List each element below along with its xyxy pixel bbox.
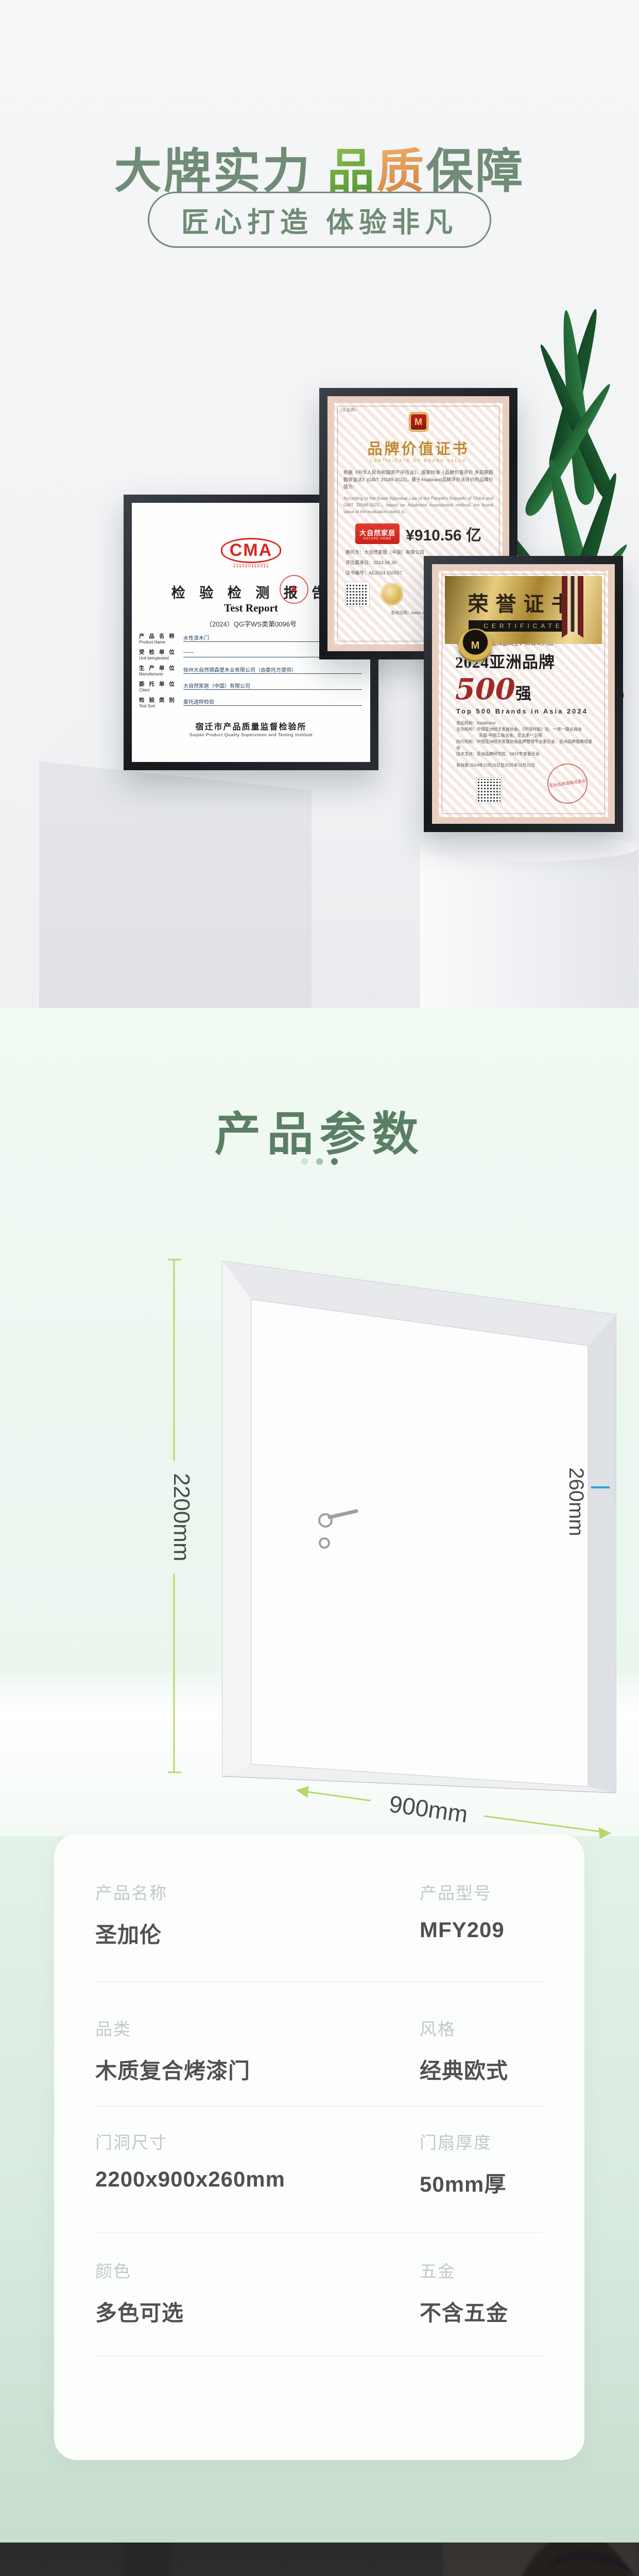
honor-org-line: 东盟-中国工商总会、亚太第一卫视 [456,733,593,739]
honor-org-line: 执行机构：中国亚洲经济发展协会品牌管理专业委员会、亚洲品牌盛典组委会 [456,739,593,751]
m-badge-icon: M [411,414,426,430]
spec-row: 品类 木质复合烤漆门 风格 经典欧式 [95,2015,543,2085]
door-depth-label: 260mm [565,1467,588,1536]
honor-validity: 有效期:2024年10月26日至2025年10月25日 [456,762,608,768]
spec-label: 门扇厚度 [420,2129,506,2154]
product-params-section: 产品参数 2200mm [0,1008,639,2543]
hero-section: 大牌实力 品质保障 匠心打造 体验非凡 CMA [0,0,639,1008]
brand-value-paragraph-cn: 依据《中华人民共和国资产评估法》、国家标准《品牌价值评价 多周期超额收益法》(G… [343,469,493,491]
door-leaf [251,1299,588,1787]
red-seal-icon: ✶ [280,575,308,604]
spec-value: 不含五金 [420,2296,508,2327]
honor-org-line: 技术支持：亚洲品牌研究院、5810专家委员会 [456,751,593,757]
door-frame-right [588,1315,616,1793]
cma-logo: CMA [221,538,281,563]
test-report-field: 生 产 单 位Manufacturer 徐州大自然德森堡木业有限公司（由委托方提… [139,664,370,676]
gold-seal-icon [381,583,403,605]
honor-award-en: Top 500 Brands in Asia 2024 [456,707,608,715]
divider [95,1981,543,1982]
spec-label: 产品型号 [420,1879,505,1904]
service-section: 金保姆服务 全国1000+实体门店支持 咨询下单 › 上门量尺 [0,2543,639,2576]
hero-title-accent-orange: 质 [376,145,426,198]
hero-subtitle: 匠心打造 体验非凡 [148,192,491,248]
honor-org-line: 主办机构：中国亚洲经济发展协会、《环球时报》社、一带一路总商会 [456,726,593,733]
certificate-honor: 荣誉证书 CERTIFICATE M 证书编号:BP2024-100047 大自… [424,556,623,832]
hero-title-prefix: 大牌实力 [114,145,327,198]
test-report-field: 委 托 单 位Client 大自然家居（中国）有限公司 [139,680,370,692]
spec-value: 经典欧式 [420,2054,508,2085]
product-detail-page: 大牌实力 品质保障 匠心打造 体验非凡 CMA [0,0,639,2576]
door-height-label: 2200mm [169,1473,194,1561]
brand-value-amount: ¥910.56 亿 [406,522,481,545]
spec-row: 门洞尺寸 2200x900x260mm 门扇厚度 50mm厚 [95,2129,543,2192]
nature-home-logo: 大自然家居 NATURE HOME [355,523,400,544]
params-title: 产品参数 [0,1096,639,1163]
brand-value-paragraph-en: According to the Asset Appraisal Law of … [343,495,493,516]
spec-label: 五金 [420,2258,508,2282]
door-width-label: 900mm [388,1790,470,1828]
divider [95,2355,543,2356]
divider [95,2232,543,2232]
spec-row: 颜色 多色可选 五金 不含五金 [95,2258,543,2327]
qr-code-icon [346,582,369,606]
test-report-issuer: 宿迁市产品质量监督检验所 [132,720,370,732]
door-dimension-diagram: 2200mm 260mm 900mm [154,1234,638,1844]
hero-subtitle-pill: 匠心打造 体验非凡 [0,192,639,248]
spec-row: 产品名称 圣加伦 产品型号 MFY209 [95,1879,543,1949]
hero-title-accent-green: 品 [327,145,376,198]
divider [95,2106,543,2107]
spec-value: 50mm厚 [420,2167,506,2198]
test-report-issuer-en: Suqian Product Quality Supervision and T… [132,732,370,737]
spec-card: 产品名称 圣加伦 产品型号 MFY209 品类 木质复合烤漆门 风格 经典欧式 … [54,1834,584,2460]
m-medal-icon: M [458,629,492,663]
door-frame-left [222,1261,251,1776]
pedestal-cube-front [39,761,319,1008]
spec-label: 风格 [420,2015,508,2040]
qr-code-icon [477,778,502,803]
honor-org-line: 发起机构：Asiabrand [456,720,593,726]
pedestal-cylinder-top [420,834,638,861]
dark-overlay [0,2543,639,2576]
pedestal-cylinder-body [420,848,638,1008]
brand-value-title: 品牌价值证书 [334,437,503,459]
ribbon-icon [562,576,583,638]
brand-value-field: 委托方：大自然家居（中国）有限公司 [346,549,503,555]
spec-value: MFY209 [420,1918,505,1942]
hero-title-suffix: 保障 [426,145,525,198]
dots-decoration [0,1158,639,1165]
brand-value-category: ·(企业类)· [339,407,357,413]
brand-value-title-en: CERTIFICATE OF BRAND VALUE [334,459,503,463]
test-report-field: 检 验 类 别Test Sort 委托送样检验 [139,696,370,708]
